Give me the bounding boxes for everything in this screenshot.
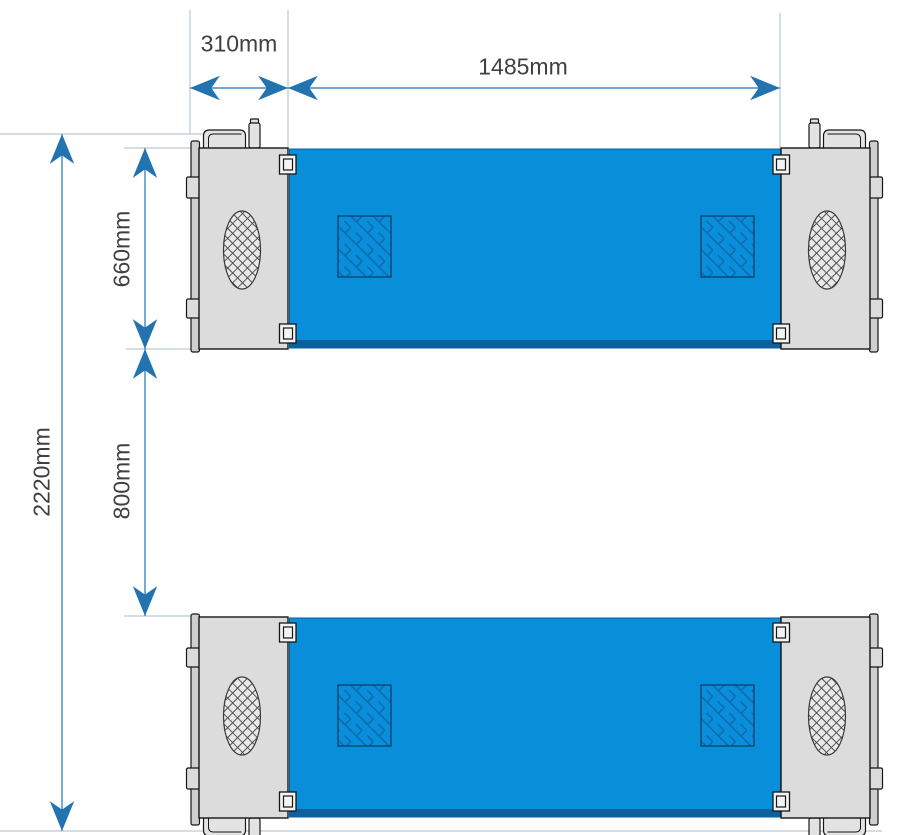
platform-bottom xyxy=(187,614,883,835)
dimension-label-310: 310mm xyxy=(201,31,278,58)
dimension-label-800: 800mm xyxy=(109,443,136,520)
platform-top xyxy=(187,119,883,352)
dimension-label-2220: 2220mm xyxy=(29,427,56,516)
technical-drawing-canvas: 310mm 1485mm 660mm 800mm 2220mm xyxy=(0,0,901,835)
dimension-label-1485: 1485mm xyxy=(478,54,567,81)
dimension-label-660: 660mm xyxy=(109,211,136,288)
platform-dimension-drawing xyxy=(0,0,901,835)
